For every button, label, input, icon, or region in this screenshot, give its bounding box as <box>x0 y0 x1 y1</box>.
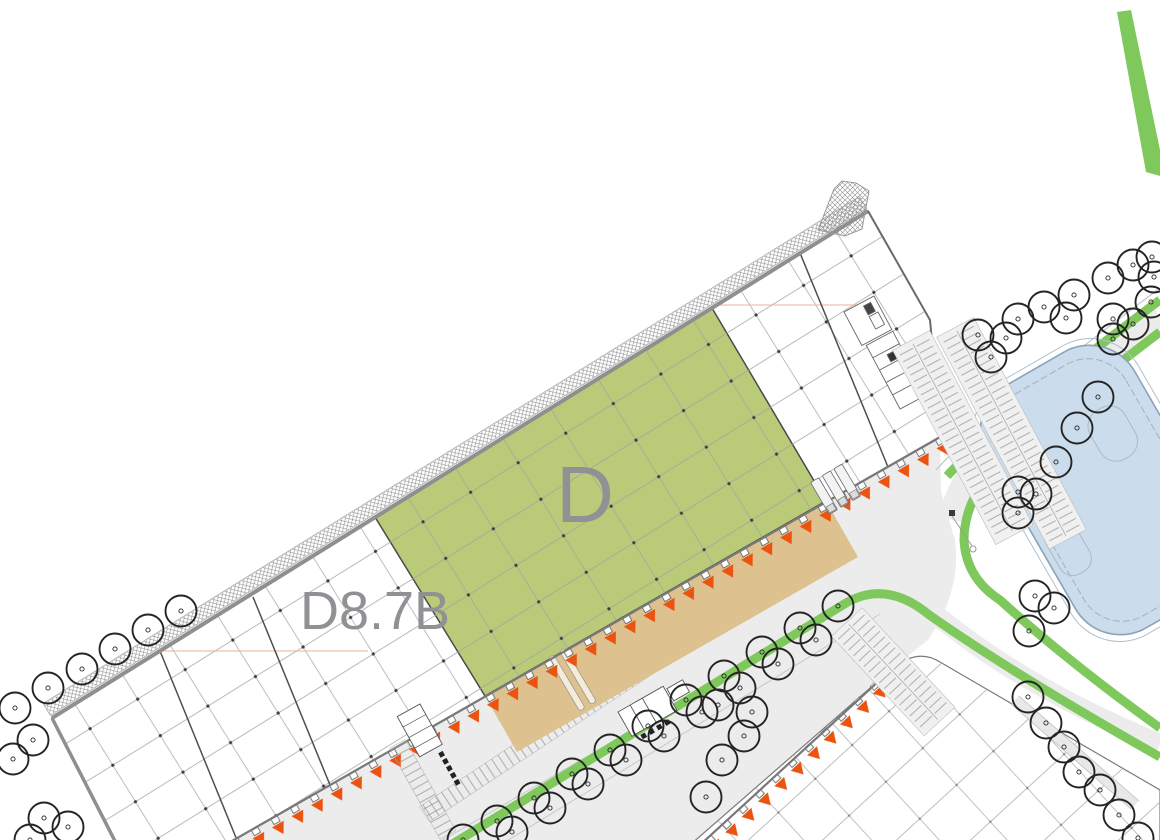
site-plan: D D8.7B <box>0 0 1160 840</box>
landscape-strip-top-right <box>1117 10 1160 176</box>
tree-icon <box>18 725 49 756</box>
tree-icon <box>1039 593 1070 624</box>
building-label: D8.7B <box>300 581 450 641</box>
tree-icon <box>1020 581 1051 612</box>
corner-gravel-pad <box>818 181 869 236</box>
hydrant-valve-icon <box>970 546 976 552</box>
unit-d-label[interactable]: D <box>556 450 614 539</box>
tree-icon <box>1093 263 1124 294</box>
hydrant-icon <box>949 510 955 516</box>
tree-icon <box>33 673 64 704</box>
tree-icon <box>991 323 1022 354</box>
tree-icon <box>1059 280 1090 311</box>
tree-icon <box>0 693 31 724</box>
tree-icon <box>0 744 29 775</box>
